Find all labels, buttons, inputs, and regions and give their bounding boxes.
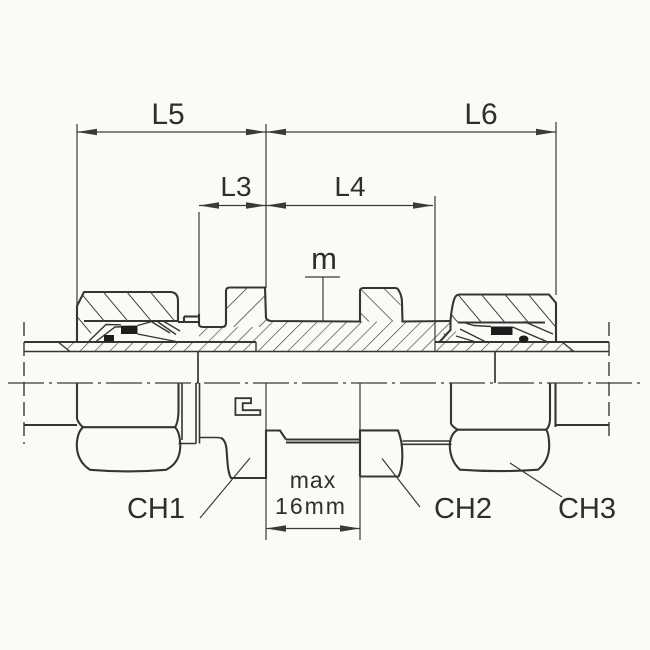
svg-text:L5: L5	[151, 98, 184, 131]
svg-text:CH3: CH3	[558, 493, 616, 525]
svg-text:L3: L3	[220, 171, 251, 202]
svg-text:L6: L6	[464, 98, 497, 131]
svg-text:m: m	[311, 241, 337, 276]
svg-text:L4: L4	[334, 171, 365, 202]
svg-text:max: max	[290, 467, 336, 493]
svg-text:16mm: 16mm	[275, 493, 347, 519]
svg-text:CH1: CH1	[127, 493, 185, 525]
svg-text:CH2: CH2	[434, 493, 492, 525]
